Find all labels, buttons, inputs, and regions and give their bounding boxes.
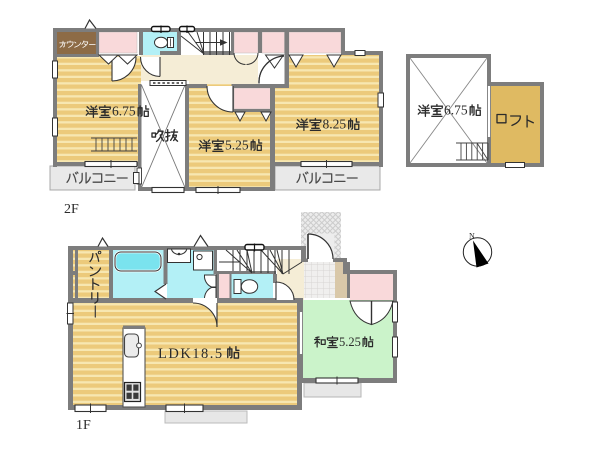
svg-text:LDK18.5: LDK18.5 (158, 346, 224, 362)
svg-text:N: N (469, 232, 475, 241)
svg-text:5.25: 5.25 (339, 335, 361, 349)
svg-text:8.25: 8.25 (323, 117, 347, 132)
svg-text:6.75: 6.75 (444, 103, 468, 118)
svg-text:2F: 2F (64, 202, 79, 217)
svg-text:1F: 1F (76, 418, 91, 433)
svg-text:6.75: 6.75 (112, 104, 136, 119)
svg-text:5.25: 5.25 (225, 138, 249, 153)
